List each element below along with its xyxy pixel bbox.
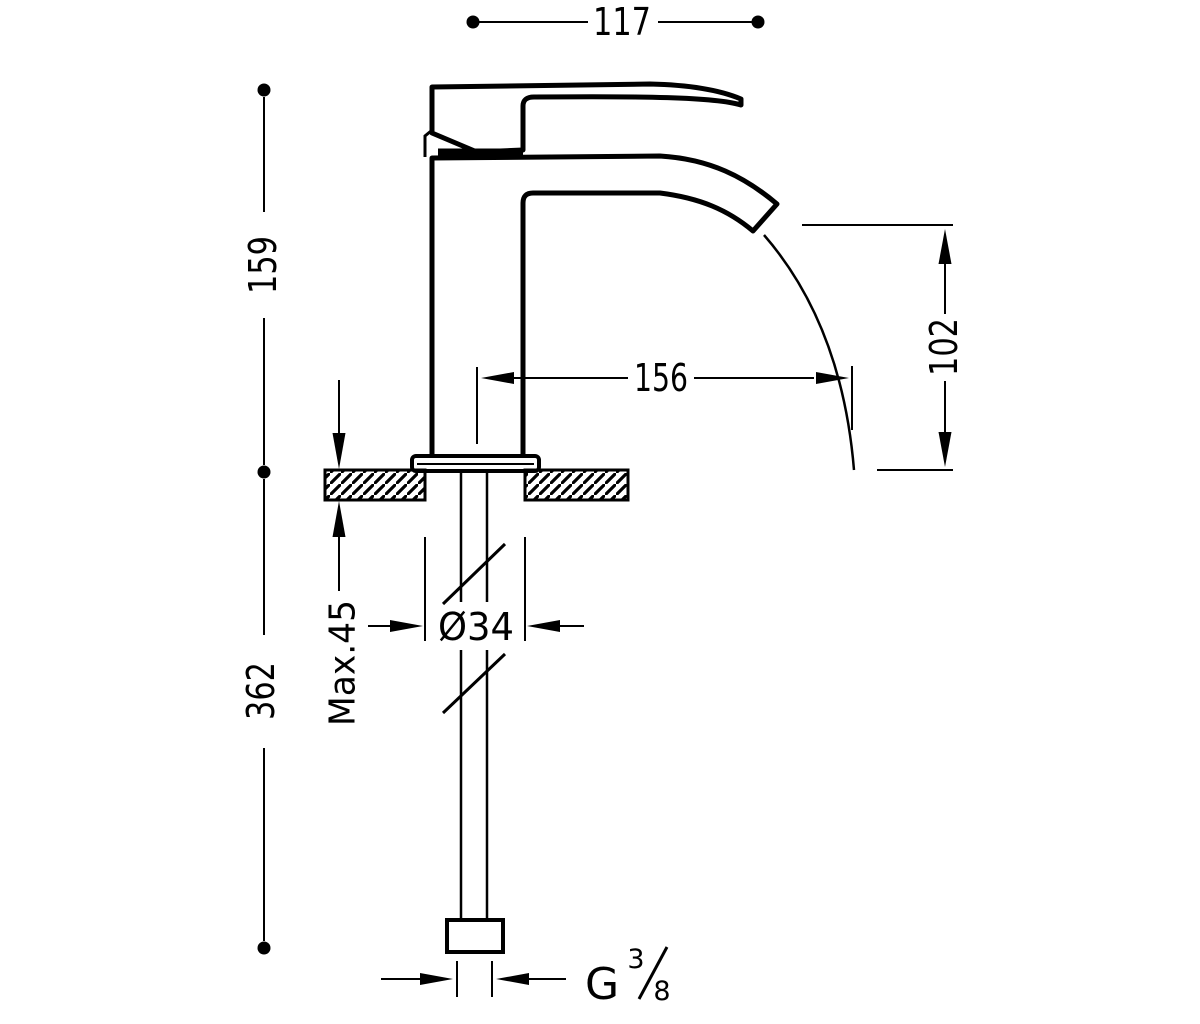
deck-section-right <box>525 470 628 500</box>
technical-drawing-page: 117 159 362 Max.45 Ø34 156 <box>0 0 1200 1024</box>
arrowhead-left <box>527 620 560 632</box>
faucet-body-spout <box>432 156 777 459</box>
arrowhead-up <box>333 501 346 537</box>
thread-numerator-label: 3 <box>627 944 644 975</box>
arrowhead-right <box>390 620 423 632</box>
dim-height-above-deck: 159 <box>241 84 285 479</box>
arrowhead-left <box>496 973 529 985</box>
arrowhead-right <box>816 372 849 384</box>
dim-dot <box>258 84 271 97</box>
arrowhead-down <box>333 433 346 469</box>
drawing-canvas: 117 159 362 Max.45 Ø34 156 <box>0 0 1200 1024</box>
dim-width-top: 117 <box>467 0 765 44</box>
dim-label-max-deck-thickness: Max.45 <box>323 600 364 726</box>
water-stream <box>764 235 854 470</box>
dim-label-spout-drop-height: 102 <box>922 318 966 376</box>
dim-hole-diameter: Ø34 <box>368 537 584 649</box>
thread-denominator-label: 8 <box>653 976 670 1007</box>
arrowhead-up <box>939 229 952 264</box>
dim-height-below-deck: 362 <box>239 479 283 955</box>
deck-section-left <box>325 470 425 500</box>
arrowhead-down <box>939 432 952 467</box>
dim-spout-drop-height: 102 <box>802 225 966 470</box>
dim-thread-connection: G 3 8 <box>381 944 671 1010</box>
hose-connector-nut <box>447 920 503 952</box>
faucet <box>412 84 777 471</box>
hose-break-lower <box>443 654 505 713</box>
supply-hose <box>433 472 519 952</box>
dim-label-height-above-deck: 159 <box>241 236 285 294</box>
dim-dot <box>258 942 271 955</box>
hose-break-upper <box>443 544 505 604</box>
dim-dot <box>258 466 271 479</box>
dim-label-height-below-deck: 362 <box>239 662 283 720</box>
mounting-deck <box>325 470 628 500</box>
faucet-lever <box>432 84 741 152</box>
dim-dot <box>467 16 480 29</box>
dim-label-hole-diameter: Ø34 <box>438 605 514 649</box>
arrowhead-right <box>420 973 453 985</box>
thread-prefix-label: G <box>585 959 619 1010</box>
dim-spout-reach: 156 <box>477 356 852 444</box>
dim-label-spout-reach: 156 <box>634 356 688 400</box>
dim-label-width-top: 117 <box>593 0 651 44</box>
faucet-step-notch <box>425 131 431 157</box>
dim-dot <box>752 16 765 29</box>
dim-max-deck-thickness: Max.45 <box>323 380 364 726</box>
